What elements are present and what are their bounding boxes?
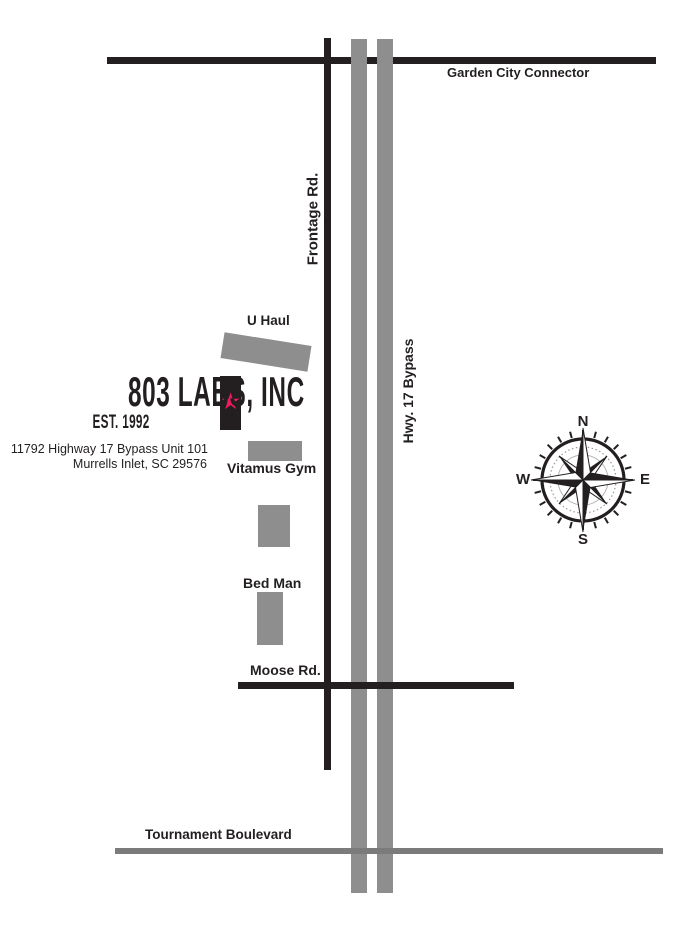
road-label-tournament: Tournament Boulevard — [145, 827, 292, 842]
directions-map: Garden City Connector Frontage Rd. Hwy. … — [0, 0, 700, 933]
road-frontage — [324, 38, 331, 770]
landmark-label-uhaul: U Haul — [247, 313, 290, 328]
compass-label-east: E — [640, 471, 650, 488]
landmark-label-bed-man: Bed Man — [243, 575, 301, 591]
address-line-1: 11792 Highway 17 Bypass Unit 101 — [0, 442, 208, 456]
logo-title-text: 803 LABS, INC — [128, 371, 305, 413]
road-tournament — [115, 848, 663, 854]
logo-title: 803 LABS, INC — [0, 371, 207, 413]
road-label-frontage: Frontage Rd. — [305, 173, 322, 266]
landmark-label-vitamus-gym: Vitamus Gym — [227, 460, 316, 476]
building-vitamus-gym — [248, 441, 302, 461]
compass-rose-graphic — [513, 410, 653, 550]
building-bed-man — [257, 592, 283, 645]
address-line-2: Murrells Inlet, SC 29576 — [0, 457, 207, 471]
road-label-garden-city-connector: Garden City Connector — [447, 65, 589, 80]
road-hwy17-lane-east — [377, 39, 393, 893]
road-moose — [238, 682, 514, 689]
compass-label-south: S — [513, 531, 653, 548]
logo-established-text: EST. 1992 — [92, 413, 149, 432]
road-label-moose: Moose Rd. — [250, 662, 321, 678]
road-label-hwy17-bypass: Hwy. 17 Bypass — [400, 339, 416, 444]
logo-established: EST. 1992 — [21, 413, 221, 432]
building-unlabeled — [258, 505, 290, 547]
compass-label-west: W — [516, 471, 530, 488]
compass-rose: N S W E — [513, 410, 653, 550]
building-uhaul — [221, 332, 312, 371]
compass-label-north: N — [513, 413, 653, 430]
road-hwy17-lane-west — [351, 39, 367, 893]
